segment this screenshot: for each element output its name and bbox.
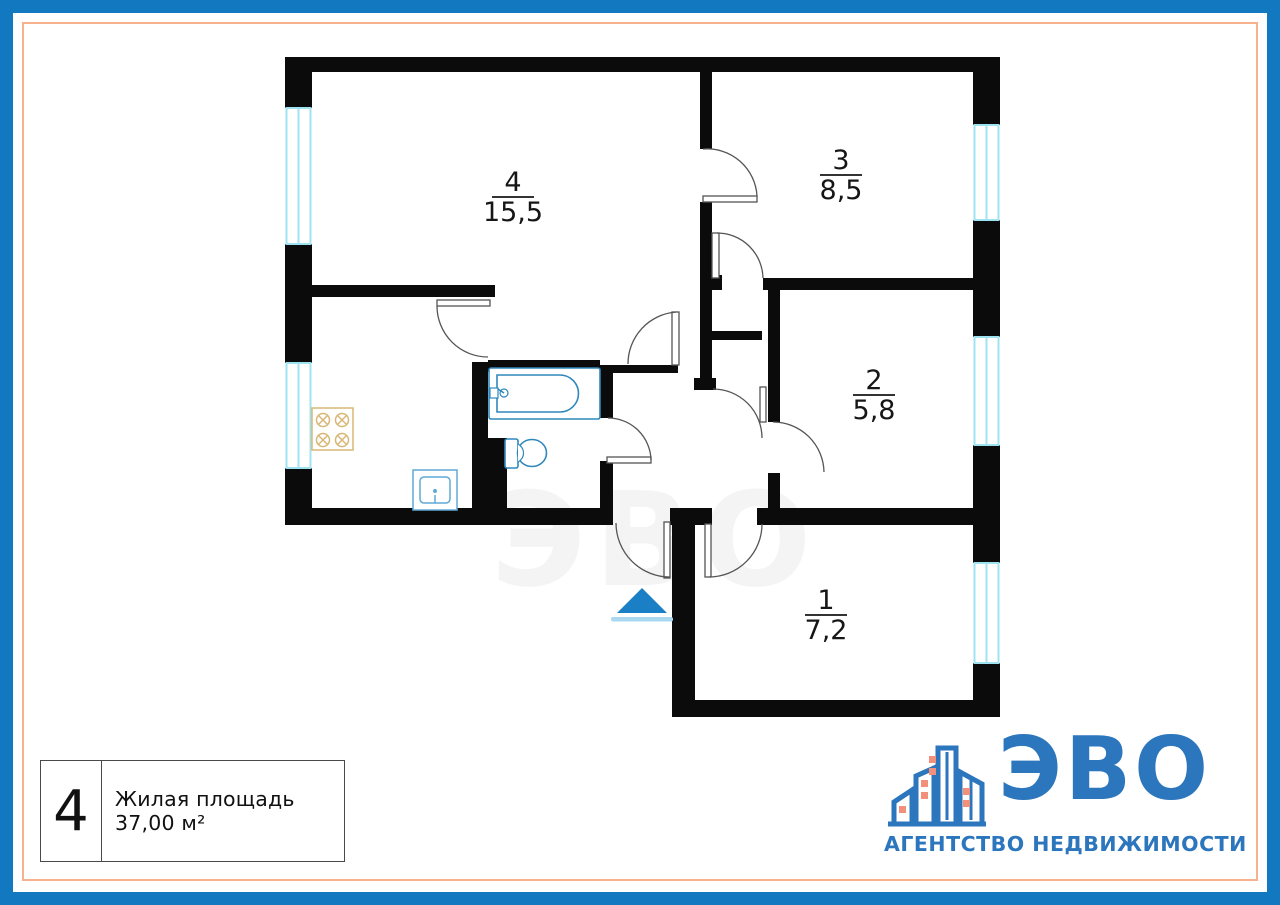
door-bathroom: [607, 418, 651, 463]
window-room4: [287, 108, 311, 244]
door-closet-room3: [712, 233, 763, 278]
page: ЭВО: [0, 0, 1280, 905]
window-room1: [975, 563, 999, 663]
room1-area: 7,2: [805, 615, 848, 646]
legend-flat-number: 4: [41, 761, 102, 861]
room4-area: 15,5: [483, 197, 543, 228]
room3-area: 8,5: [820, 175, 863, 206]
label-room2: 2 5,8: [853, 365, 896, 426]
legend-label: Жилая площадь 37,00 м²: [102, 761, 344, 861]
room3-number: 3: [832, 145, 849, 176]
window-kitchen: [287, 363, 311, 468]
window-room3: [975, 125, 999, 220]
room2-area: 5,8: [853, 395, 896, 426]
door-room3: [703, 149, 757, 202]
bathtub-icon: [489, 368, 600, 419]
sink-icon: [413, 470, 457, 510]
label-room4: 4 15,5: [483, 167, 543, 228]
door-hall-room4: [628, 312, 679, 365]
legend-box: 4 Жилая площадь 37,00 м²: [40, 760, 345, 862]
room1-number: 1: [817, 585, 834, 616]
window-room2: [975, 337, 999, 445]
logo-name: ЭВО: [998, 722, 1211, 818]
logo-tagline: АГЕНТСТВО НЕДВИЖИМОСТИ: [884, 832, 1219, 856]
room2-number: 2: [865, 365, 882, 396]
door-kitchen: [437, 300, 490, 357]
label-room3: 3 8,5: [820, 145, 863, 206]
stove-icon: [312, 408, 353, 450]
room4-number: 4: [504, 167, 521, 198]
buildings-icon: [886, 740, 990, 830]
toilet-icon: [505, 439, 547, 468]
door-closet-hall: [713, 389, 762, 438]
agency-logo: ЭВО АГЕНТСТВО НЕДВИЖИМОСТИ: [884, 738, 1229, 863]
